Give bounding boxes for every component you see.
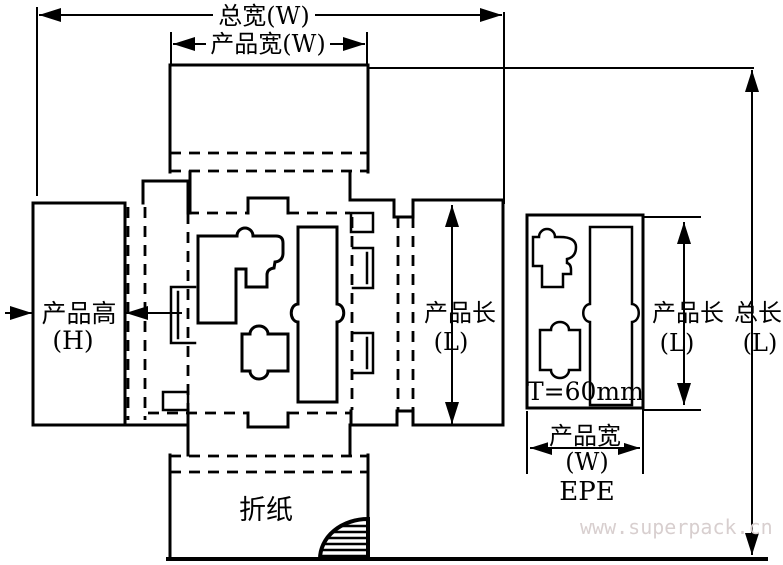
hatched-corner [320,519,368,559]
epe-material-label: EPE [559,477,614,507]
total-length-label-en: (L) [743,329,778,357]
labels: 总宽(W) 产品宽(W) 产品高 (H) 产品长 (L) 折纸 T=60mm 产… [41,2,782,539]
product-length-label-cn: 产品长 [424,299,496,327]
left-edge-slot [171,287,195,343]
right-fold-lines [398,217,413,410]
epe-thickness-label: T=60mm [527,377,644,406]
fold-paper-label: 折纸 [239,495,293,526]
epe-product-length-label-cn: 产品长 [652,299,724,327]
dieline-canvas: 总宽(W) 产品宽(W) 产品高 (H) 产品长 (L) 折纸 T=60mm 产… [0,0,783,565]
epe-puzzle-shape [533,229,576,287]
total-width-label: 总宽(W) [218,2,309,30]
product-width-label: 产品宽(W) [210,30,325,58]
dieline-diagram: 总宽(W) 产品宽(W) 产品高 (H) 产品长 (L) 折纸 T=60mm 产… [0,0,783,565]
right-edge-slot-upper [353,248,373,288]
product-length-label-en: (L) [434,328,469,356]
product-height-label-en: (H) [52,326,93,355]
epe-product-length-label-en: (L) [660,329,695,357]
bottom-left-slot [163,392,188,410]
cutout-flower-shape [242,326,288,379]
left-neck-tab [143,181,188,213]
top-neck [190,172,350,213]
total-length-label-cn: 总长 [734,299,782,327]
cutout-tall-bar [291,227,344,402]
right-edge-slot-lower [353,333,373,373]
product-height-label-cn: 产品高 [41,299,116,328]
epe-product-width-label-cn: 产品宽 [549,422,621,450]
top-flap [170,65,368,172]
cutout-puzzle-shape [198,228,283,323]
watermark-text: www.superpack.cn [580,515,773,539]
right-edge-square [351,213,373,232]
dimension-lines [6,8,753,554]
top-tab [248,198,288,213]
epe-product-width-label-en: (W) [565,448,608,476]
epe-flower-shape [540,322,580,378]
bottom-junction [125,410,413,455]
